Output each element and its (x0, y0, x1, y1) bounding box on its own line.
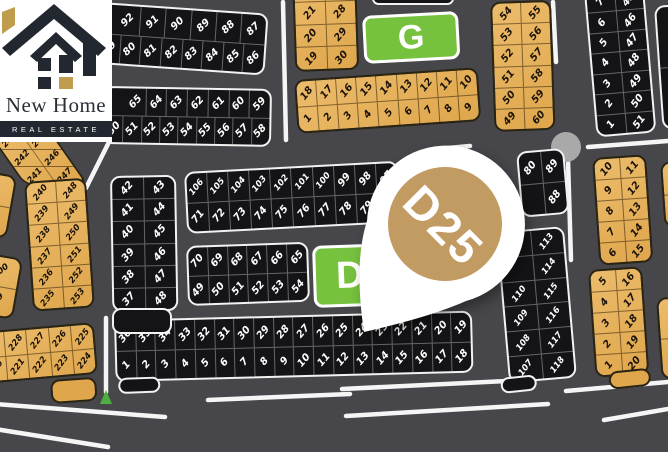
plot-map: 9291908988877980818283848586656463626160… (0, 0, 668, 452)
map-pin[interactable]: D25 (0, 0, 668, 452)
